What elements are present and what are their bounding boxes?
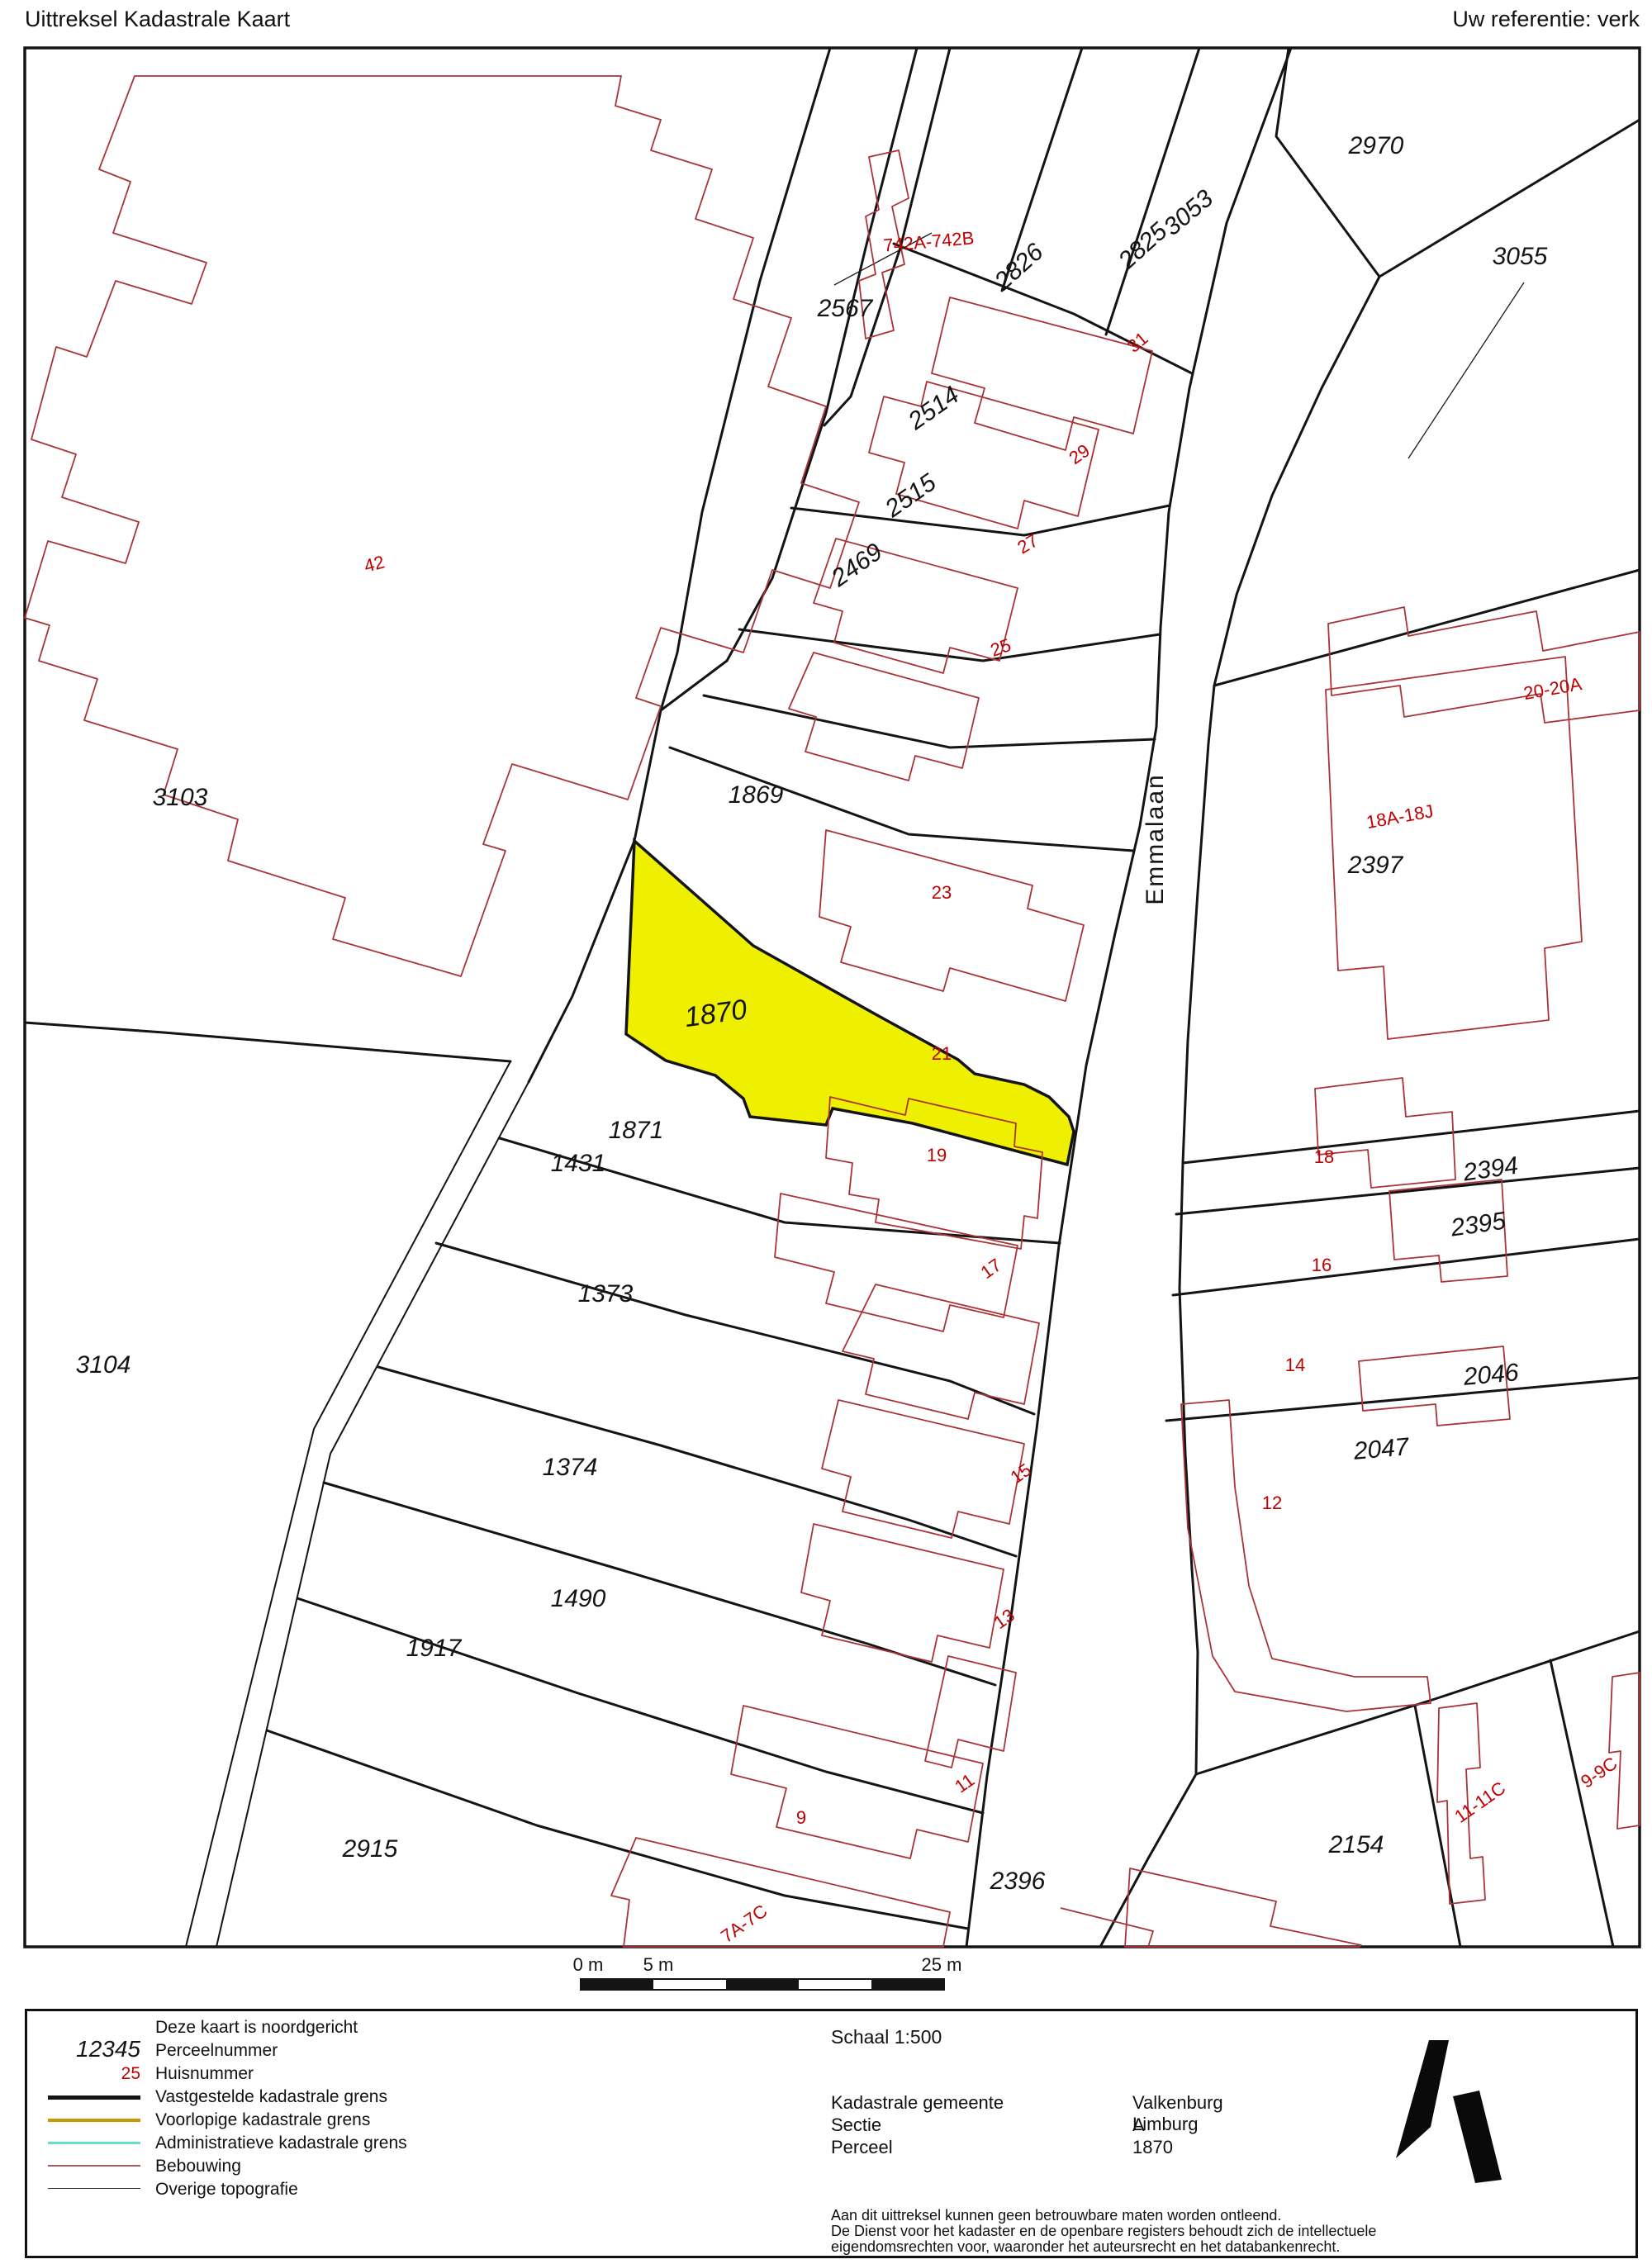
house-number-14: 14 <box>1285 1355 1305 1375</box>
parcel-label-1869: 1869 <box>729 781 784 809</box>
scalebar-label-0m: 0 m <box>573 1954 604 1975</box>
parcel-label-2047: 2047 <box>1351 1433 1411 1465</box>
field-value: Valkenburg Limburg <box>1132 2092 1223 2135</box>
house-number-16: 16 <box>1312 1255 1332 1275</box>
map-container: 2970305530532825282625672514251524693103… <box>0 0 1652 2003</box>
legend-label: Vastgestelde kadastrale grens <box>155 2087 387 2107</box>
house-number-18: 18 <box>1314 1146 1334 1167</box>
parcel-label-1917: 1917 <box>406 1635 463 1662</box>
legend-sample-parcelnumber: 12345 <box>48 2036 140 2062</box>
legend-line-sample <box>48 2142 140 2144</box>
map-footer: Deze kaart is noordgericht12345Perceelnu… <box>25 2009 1638 2258</box>
scale-bar <box>581 1979 944 1990</box>
legend-label: Voorlopige kadastrale grens <box>155 2110 370 2130</box>
parcel-label-1374: 1374 <box>543 1454 598 1481</box>
field-value: 1870 <box>1132 2137 1173 2158</box>
legend-label: Overige topografie <box>155 2180 298 2200</box>
legend-label: Administratieve kadastrale grens <box>155 2133 407 2153</box>
parcel-label-1373: 1373 <box>578 1280 634 1308</box>
scalebar-label-5m: 5 m <box>643 1954 674 1975</box>
disclaimer-line: De Dienst voor het kadaster en de openba… <box>831 2224 1376 2239</box>
parcel-label-2970: 2970 <box>1348 132 1404 159</box>
street-label-emmalaan: Emmalaan <box>1142 773 1169 904</box>
parcel-label-1431: 1431 <box>551 1150 606 1177</box>
scale-text: Schaal 1:500 <box>831 2026 942 2048</box>
info-field-sectie: SectieA <box>831 2114 881 2136</box>
parcel-label-3055: 3055 <box>1493 243 1548 270</box>
legend-line-sample <box>48 2188 140 2189</box>
parcel-label-3103: 3103 <box>153 784 208 811</box>
parcel-label-2396: 2396 <box>990 1868 1046 1895</box>
house-number-9: 9 <box>796 1807 806 1828</box>
house-number-21: 21 <box>932 1043 952 1064</box>
house-number-19: 19 <box>927 1145 947 1165</box>
scalebar-label-25m: 25 m <box>922 1954 962 1975</box>
field-value: A <box>1132 2114 1145 2136</box>
parcel-label-2567: 2567 <box>817 295 874 322</box>
legend-line-sample <box>48 2096 140 2100</box>
parcel-label-1871: 1871 <box>609 1117 664 1144</box>
info-field-perceel: Perceel1870 <box>831 2137 893 2158</box>
legend-sample-housenumber: 25 <box>48 2064 140 2084</box>
legend-label: Bebouwing <box>155 2157 241 2176</box>
parcel-label-2915: 2915 <box>342 1835 398 1863</box>
legend-line-sample <box>48 2119 140 2122</box>
parcel-label-2046: 2046 <box>1461 1359 1520 1391</box>
legend-label: Huisnummer <box>155 2064 254 2084</box>
info-field-kadastrale-gemeente: Kadastrale gemeenteValkenburg Limburg <box>831 2092 1004 2114</box>
cadastral-map: 2970305530532825282625672514251524693103… <box>0 0 1652 1999</box>
legend-label: Deze kaart is noordgericht <box>155 2018 358 2038</box>
legend-label: Perceelnummer <box>155 2041 278 2061</box>
field-label: Sectie <box>831 2114 881 2135</box>
kadaster-logo-icon <box>1390 2034 1531 2200</box>
legend-line-sample <box>48 2165 140 2167</box>
house-number-12: 12 <box>1262 1493 1282 1513</box>
parcel-label-3104: 3104 <box>76 1351 131 1379</box>
parcel-label-2154: 2154 <box>1328 1831 1384 1858</box>
parcel-label-2397: 2397 <box>1347 852 1404 879</box>
disclaimer-line: eigendomsrechten voor, waaronder het aut… <box>831 2239 1340 2255</box>
field-label: Kadastrale gemeente <box>831 2092 1004 2113</box>
kadaster-extract-page: { "header": { "title": "Uittreksel Kadas… <box>0 0 1652 2264</box>
house-number-23: 23 <box>932 882 952 903</box>
disclaimer-line: Aan dit uittreksel kunnen geen betrouwba… <box>831 2208 1281 2224</box>
parcel-label-1490: 1490 <box>551 1585 606 1612</box>
field-label: Perceel <box>831 2137 893 2157</box>
